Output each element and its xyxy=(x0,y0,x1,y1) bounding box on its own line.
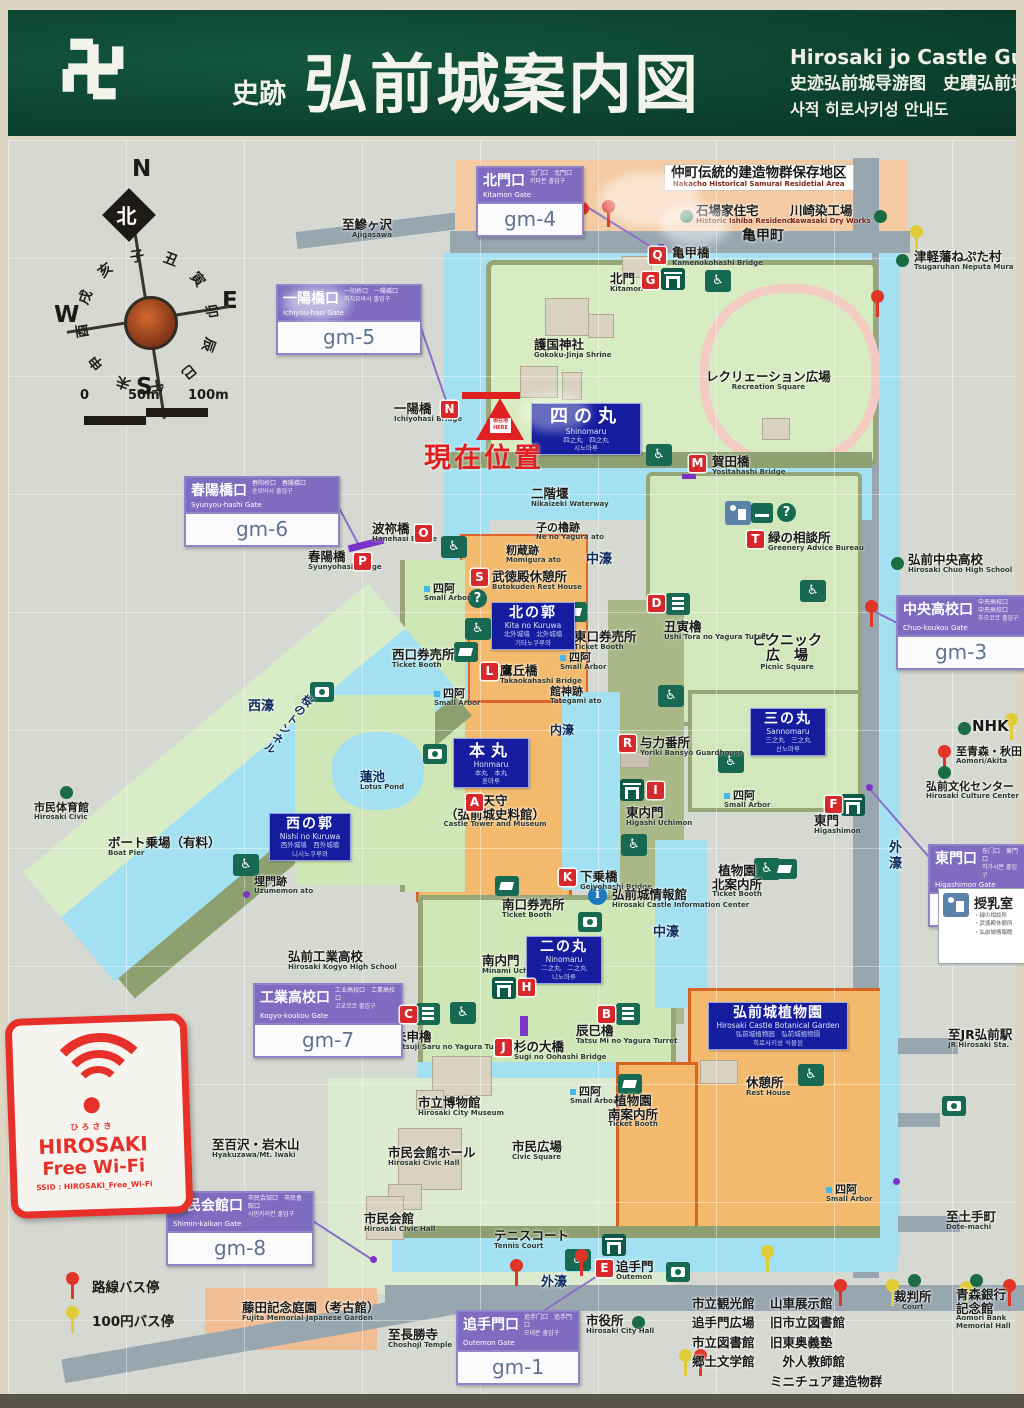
letter-badge-B: B xyxy=(598,1006,615,1023)
toilet-icon: ♿ xyxy=(646,444,672,466)
area-name-box: 本丸Honmaru本丸 本丸혼마루 xyxy=(453,738,529,788)
nursing-room-item: ・緑の相談所 xyxy=(974,912,1013,920)
bus-stop-pin xyxy=(938,745,951,758)
map-label: レクリェーション広場Recreation Square xyxy=(706,370,831,391)
letter-badge-L: L xyxy=(481,663,498,680)
map-label: 内濠 xyxy=(550,724,574,737)
ticket-icon xyxy=(618,1074,642,1094)
bus-stop-pin xyxy=(834,1279,847,1292)
place-dot xyxy=(896,254,909,267)
map-label: 四阿Small Arbor xyxy=(424,583,470,602)
map-label: 外濠 xyxy=(886,840,900,872)
map-label: 至土手町Dote-machi xyxy=(946,1210,996,1231)
gate-point-marker xyxy=(520,1016,528,1036)
place-dot xyxy=(938,766,951,779)
map-label: 北門Kitamon xyxy=(610,272,643,293)
gate-entrance-box: 春陽橋口春阳桥口 春陽橋口 슌요바시 출입구Syunyou-hashi Gate… xyxy=(184,476,340,547)
map-label: 山車展示館 旧市立図書館 旧東奥義塾 外人教師館 ミニチュア建造物群 xyxy=(770,1294,882,1391)
gate-icon xyxy=(661,268,685,290)
map-label: テニスコートTennis Court xyxy=(494,1229,569,1250)
leader-line xyxy=(309,1218,372,1260)
toilet-icon: ♿ xyxy=(233,854,259,876)
map-label: 未申櫓Hitsuji Saru no Yagura Turret xyxy=(394,1030,509,1051)
bus-stop-pin xyxy=(575,1249,588,1262)
map-label: 子の櫓跡Ne no Yagura ato xyxy=(536,522,604,541)
letter-badge-M: M xyxy=(689,455,706,472)
map-label: 杉の大橋Sugi no Oohashi Bridge xyxy=(514,1040,607,1061)
map-label: 埋門跡Uzumemon ato xyxy=(254,876,313,895)
map-label: 至長勝寺Choshoji Temple xyxy=(388,1328,452,1349)
letter-badge-O: O xyxy=(415,525,432,542)
nursing-icon xyxy=(725,501,751,525)
map-label: 四阿Small Arbor xyxy=(560,652,606,671)
zodiac-char: 丑 xyxy=(161,248,181,272)
area-name-box: 弘前城植物園Hirosaki Castle Botanical Garden弘前… xyxy=(708,1002,848,1050)
zodiac-char: 亥 xyxy=(94,258,117,282)
toilet-icon: ♿ xyxy=(800,580,826,602)
map-label: 弘前工業高校Hirosaki Kogyo High School xyxy=(288,950,397,971)
map-label: 蓮池Lotus Pond xyxy=(360,770,404,791)
letter-badge-R: R xyxy=(619,735,636,752)
map-label: 至百沢・岩木山Hyakuzawa/Mt. Iwaki xyxy=(212,1138,300,1159)
place-dot xyxy=(60,786,73,799)
question-icon: ? xyxy=(468,589,487,608)
map-label: 市立観光館 追手門広場 市立図書館 郷土文学館 xyxy=(692,1294,755,1372)
route-bus-pin-icon xyxy=(66,1272,79,1285)
compass-hub xyxy=(124,296,178,350)
bus-stop-pin xyxy=(871,290,884,303)
gate-point-marker xyxy=(682,474,696,479)
gate-entrance-box: 中央高校口中央高校口 中央高校口 추오코코 출입구Chuo-koukou Gat… xyxy=(896,595,1024,670)
area-name-box: 西の郭Nishi no Kuruwa西外城墙 西外城墻니시노쿠루와 xyxy=(269,813,351,861)
area-name-box: 二の丸Ninomaru二之丸 二之丸니노마루 xyxy=(526,936,602,984)
map-label: 裁判所Court xyxy=(894,1290,932,1311)
map-label: 津軽藩ねぷた村Tsugaruhan Neputa Mura xyxy=(914,250,1014,271)
castle-guide-map-sign: 史跡 弘前城案内図 Hirosaki jo Castle Guide Map 史… xyxy=(0,0,1024,1408)
ticket-icon xyxy=(495,876,519,896)
bus-stop-pin xyxy=(865,600,878,613)
zodiac-char: 寅 xyxy=(186,268,210,291)
toilet-icon: ♿ xyxy=(621,834,647,856)
ticket-icon xyxy=(454,642,478,662)
map-label: 川崎染工場Kawasaki Dry Works xyxy=(790,204,871,225)
hundred-yen-bus-label: 100円バス停 xyxy=(92,1310,174,1330)
turret-icon xyxy=(616,1003,640,1025)
gate-icon xyxy=(602,1234,626,1256)
scale-segment xyxy=(146,408,208,417)
place-dot xyxy=(680,210,693,223)
wifi-ssid: SSID : HIROSAKI_Free_Wi-Fi xyxy=(17,1179,171,1193)
scale-segment xyxy=(84,416,146,425)
map-label: 館神跡Tategami ato xyxy=(550,686,601,705)
map-label: 仲町伝統的建造物群保存地区Nakacho Historical Samurai … xyxy=(664,164,854,191)
letter-badge-K: K xyxy=(559,869,576,886)
map-label: 市民会館Hirosaki Civic Hall xyxy=(364,1212,435,1233)
toilet-icon: ♿ xyxy=(441,536,467,558)
map-label: 天守 （弘前城史料館）Castle Tower and Museum xyxy=(420,794,570,829)
map-label: 二階堰Nikaizeki Waterway xyxy=(531,487,609,508)
map-label: 東口券売所Ticket Booth xyxy=(574,630,637,651)
gate-point-marker xyxy=(866,784,873,791)
leader-line xyxy=(870,790,932,861)
bus-stop-pin xyxy=(679,1349,692,1362)
ticket-icon xyxy=(773,859,797,879)
scale-zero: 0 xyxy=(80,388,89,403)
map-label: 市民会館ホールHirosaki Civic Hall xyxy=(388,1146,476,1167)
question-icon: ? xyxy=(777,503,796,522)
compass-rose: N E S W 北 子丑寅卯辰巳午未申酉戌亥 xyxy=(52,158,252,408)
gate-icon xyxy=(620,779,644,801)
map-label: 四阿Small Arbor xyxy=(724,790,770,809)
wifi-subtitle: Free Wi-Fi xyxy=(16,1155,171,1181)
letter-badge-P: P xyxy=(354,553,371,570)
letter-badge-J: J xyxy=(495,1039,512,1056)
map-label: 中濠 xyxy=(653,926,679,940)
map-label: 東内門Higashi Uchimon xyxy=(626,806,692,827)
camera-icon xyxy=(423,744,447,764)
map-label: 植物園 北案内所Ticket Booth xyxy=(712,864,762,899)
bus-stop-pin xyxy=(910,225,923,238)
gate-entrance-box: 追手門口追手门口 追手門口 오테몬 출입구Outemon Gategm-1 xyxy=(456,1310,580,1385)
map-label: NHK xyxy=(972,718,1009,734)
zodiac-char: 酉 xyxy=(71,323,93,340)
place-dot xyxy=(970,1274,983,1287)
map-label: 中濠 xyxy=(586,553,612,567)
map-label: 武徳殿休憩所Butokuden Rest House xyxy=(492,570,582,591)
gate-icon xyxy=(841,794,865,816)
scale-fifty: 50m xyxy=(128,388,160,403)
route-bus-label: 路線バス停 xyxy=(92,1276,160,1296)
map-label: 市役所Hirosaki City Hall xyxy=(586,1314,654,1335)
gate-entrance-box: 工業高校口工业高校口 工業高校口 고교코코 출입구Kogyo-koukou Ga… xyxy=(253,983,403,1058)
map-label: 緑の相談所Greenery Advice Bureau xyxy=(768,531,864,552)
letter-badge-G: G xyxy=(642,272,659,289)
map-label: 亀甲橋Kamenokohashi Bridge xyxy=(672,246,763,267)
place-dot xyxy=(891,557,904,570)
bus-stop-pin xyxy=(761,1245,774,1258)
zodiac-char: 申 xyxy=(84,351,108,374)
map-label: 桜のトンネル xyxy=(282,688,294,760)
gate-icon xyxy=(492,977,516,999)
map-label: 至JR弘前駅JR Hirosaki Sta. xyxy=(948,1028,1012,1049)
current-location-label: 現在位置 xyxy=(424,436,544,475)
map-label: 西口券売所Ticket Booth xyxy=(392,648,455,669)
bus-stop-pin xyxy=(602,200,615,213)
nursing-room-icon xyxy=(943,893,969,917)
map-label: 至鰺ヶ沢Ajigasawa xyxy=(330,218,392,239)
nursing-room-item: ・武徳殿休憩所 xyxy=(974,920,1013,928)
turret-icon xyxy=(416,1003,440,1025)
map-label: 亀甲町 xyxy=(742,229,784,244)
compass-east: E xyxy=(222,288,238,314)
letter-badge-D: D xyxy=(648,595,665,612)
map-label: 籾蔵跡Momigura ato xyxy=(506,545,561,564)
nursing-room-title: 授乳室 xyxy=(974,893,1013,912)
bus-stop-pin xyxy=(510,1259,523,1272)
map-label: 四阿Small Arbor xyxy=(826,1184,872,1203)
letter-badge-S: S xyxy=(471,569,488,586)
map-label: 南口券売所Ticket Booth xyxy=(502,898,565,919)
map-scale-bar: 0 50m 100m xyxy=(78,388,258,432)
map-label: 西濠 xyxy=(248,700,274,714)
map-label: 青森銀行 記念館Aomori Bank Memorial Hall xyxy=(956,1288,1011,1330)
free-wifi-sticker: ひろさき HIROSAKI Free Wi-Fi SSID : HIROSAKI… xyxy=(5,1013,194,1219)
gate-entrance-box: 一陽橋口一阳桥口 一陽橋口 이치요바시 출입구Ichiyou-hasi Gate… xyxy=(276,284,422,355)
area-name-box: 北の郭Kita no Kuruwa北外城墙 北外城墻기타노쿠루와 xyxy=(491,602,575,650)
current-location-marker: 現在地 HERE 現在位置 xyxy=(420,388,640,472)
zodiac-char: 子 xyxy=(128,245,145,267)
gate-point-marker xyxy=(370,1256,377,1263)
map-label: 賀田橋Yositahashi Bridge xyxy=(712,455,786,476)
map-label: 至青森・秋田Aomori/Akita xyxy=(956,746,1022,765)
turret-icon xyxy=(666,593,690,615)
compass-north: N xyxy=(132,156,151,182)
area-name-box: 三の丸Sannomaru三之丸 三之丸산노마루 xyxy=(750,708,826,756)
letter-badge-E: E xyxy=(596,1260,613,1277)
camera-icon xyxy=(666,1262,690,1282)
letter-badge-F: F xyxy=(825,796,842,813)
map-label: 護国神社Gokoku-Jinja Shrine xyxy=(534,338,612,359)
camera-icon xyxy=(578,912,602,932)
letter-badge-C: C xyxy=(400,1006,417,1023)
place-dot xyxy=(874,210,887,223)
zodiac-char: 卯 xyxy=(201,302,223,319)
map-label: 休憩所Rest House xyxy=(746,1076,791,1097)
toilet-icon: ♿ xyxy=(705,270,731,292)
letter-badge-I: I xyxy=(647,782,664,799)
toilet-icon: ♿ xyxy=(450,1002,476,1024)
map-label: 丑寅櫓Ushi Tora no Yagura Turret xyxy=(664,620,769,641)
letter-badge-A: A xyxy=(466,794,483,811)
gate-point-marker xyxy=(893,1178,900,1185)
map-label: 石場家住宅Historic Ishiba Residence xyxy=(696,204,796,225)
bus-stop-legend: 路線バス停 100円バス停 xyxy=(62,1268,262,1348)
you-are-here-text: 現在地 HERE xyxy=(490,418,511,433)
map-label: 植物園 南案内所Ticket Booth xyxy=(608,1094,658,1129)
map-label: 外濠 xyxy=(541,1276,567,1290)
scale-hundred: 100m xyxy=(188,388,229,403)
gate-point-marker xyxy=(243,891,250,898)
ground-strip xyxy=(0,1394,1024,1408)
map-label: 弘前文化センターHirosaki Culture Center xyxy=(926,781,1019,800)
map-label: 東門Higashimon xyxy=(814,814,861,835)
zodiac-char: 巳 xyxy=(177,360,200,384)
letter-badge-Q: Q xyxy=(649,247,666,264)
map-label: 与力番所Yoriki Bansyo Guardhouse xyxy=(640,736,743,757)
map-label: 弘前中央高校Hirosaki Chuo High School xyxy=(908,553,1012,574)
nursing-room-item: ・弘前城情報館 xyxy=(974,929,1013,937)
map-label: ボート乗場（有料）Boat Pier xyxy=(108,836,221,857)
toilet-icon: ♿ xyxy=(465,618,491,640)
smoking-icon xyxy=(751,503,773,523)
map-label: 市民体育館Hirosaki Civic xyxy=(34,802,89,821)
camera-icon xyxy=(942,1096,966,1116)
toilet-icon: ♿ xyxy=(798,1064,824,1086)
hundred-yen-bus-pin-icon xyxy=(66,1306,79,1319)
map-label: 市立博物館Hirosaki City Museum xyxy=(418,1096,504,1117)
letter-badge-T: T xyxy=(747,531,764,548)
gate-entrance-box: 北門口北门口 北門口 키타몬 출입구Kitamon Gategm-4 xyxy=(476,166,584,237)
place-dot xyxy=(908,1274,921,1287)
map-label: 四阿Small Arbor xyxy=(434,688,480,707)
nursing-room-panel: 授乳室 ・緑の相談所 ・武徳殿休憩所 ・弘前城情報館 xyxy=(938,888,1024,964)
compass-north-diamond: 北 xyxy=(102,188,156,242)
zodiac-char: 辰 xyxy=(197,335,221,355)
map-label: 追手門Outemon xyxy=(616,1260,654,1281)
place-dot xyxy=(958,722,971,735)
map-label: 市民広場Civic Square xyxy=(512,1140,562,1161)
map-label: 藤田記念庭園（考古館）Fujita Memorial Japanese Gard… xyxy=(242,1301,380,1322)
toilet-icon: ♿ xyxy=(658,685,684,707)
letter-badge-H: H xyxy=(518,979,535,996)
